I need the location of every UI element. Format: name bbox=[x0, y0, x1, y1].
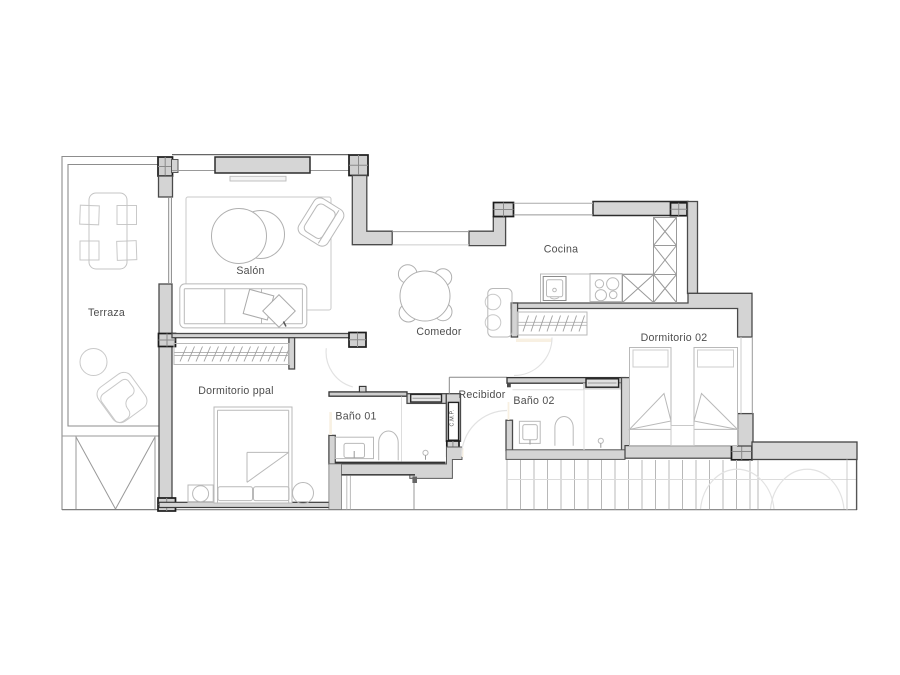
svg-text:Terraza: Terraza bbox=[88, 307, 125, 319]
svg-text:Comedor: Comedor bbox=[416, 326, 462, 338]
svg-text:Baño 02: Baño 02 bbox=[513, 395, 554, 407]
svg-text:Salón: Salón bbox=[236, 265, 264, 277]
svg-text:Baño 01: Baño 01 bbox=[335, 411, 376, 423]
svg-text:Recibidor: Recibidor bbox=[459, 389, 506, 401]
svg-text:C.M.P.: C.M.P. bbox=[450, 409, 456, 426]
svg-text:Cocina: Cocina bbox=[544, 244, 578, 256]
svg-text:Dormitorio 02: Dormitorio 02 bbox=[641, 332, 708, 344]
svg-text:Dormitorio ppal: Dormitorio ppal bbox=[198, 385, 274, 397]
